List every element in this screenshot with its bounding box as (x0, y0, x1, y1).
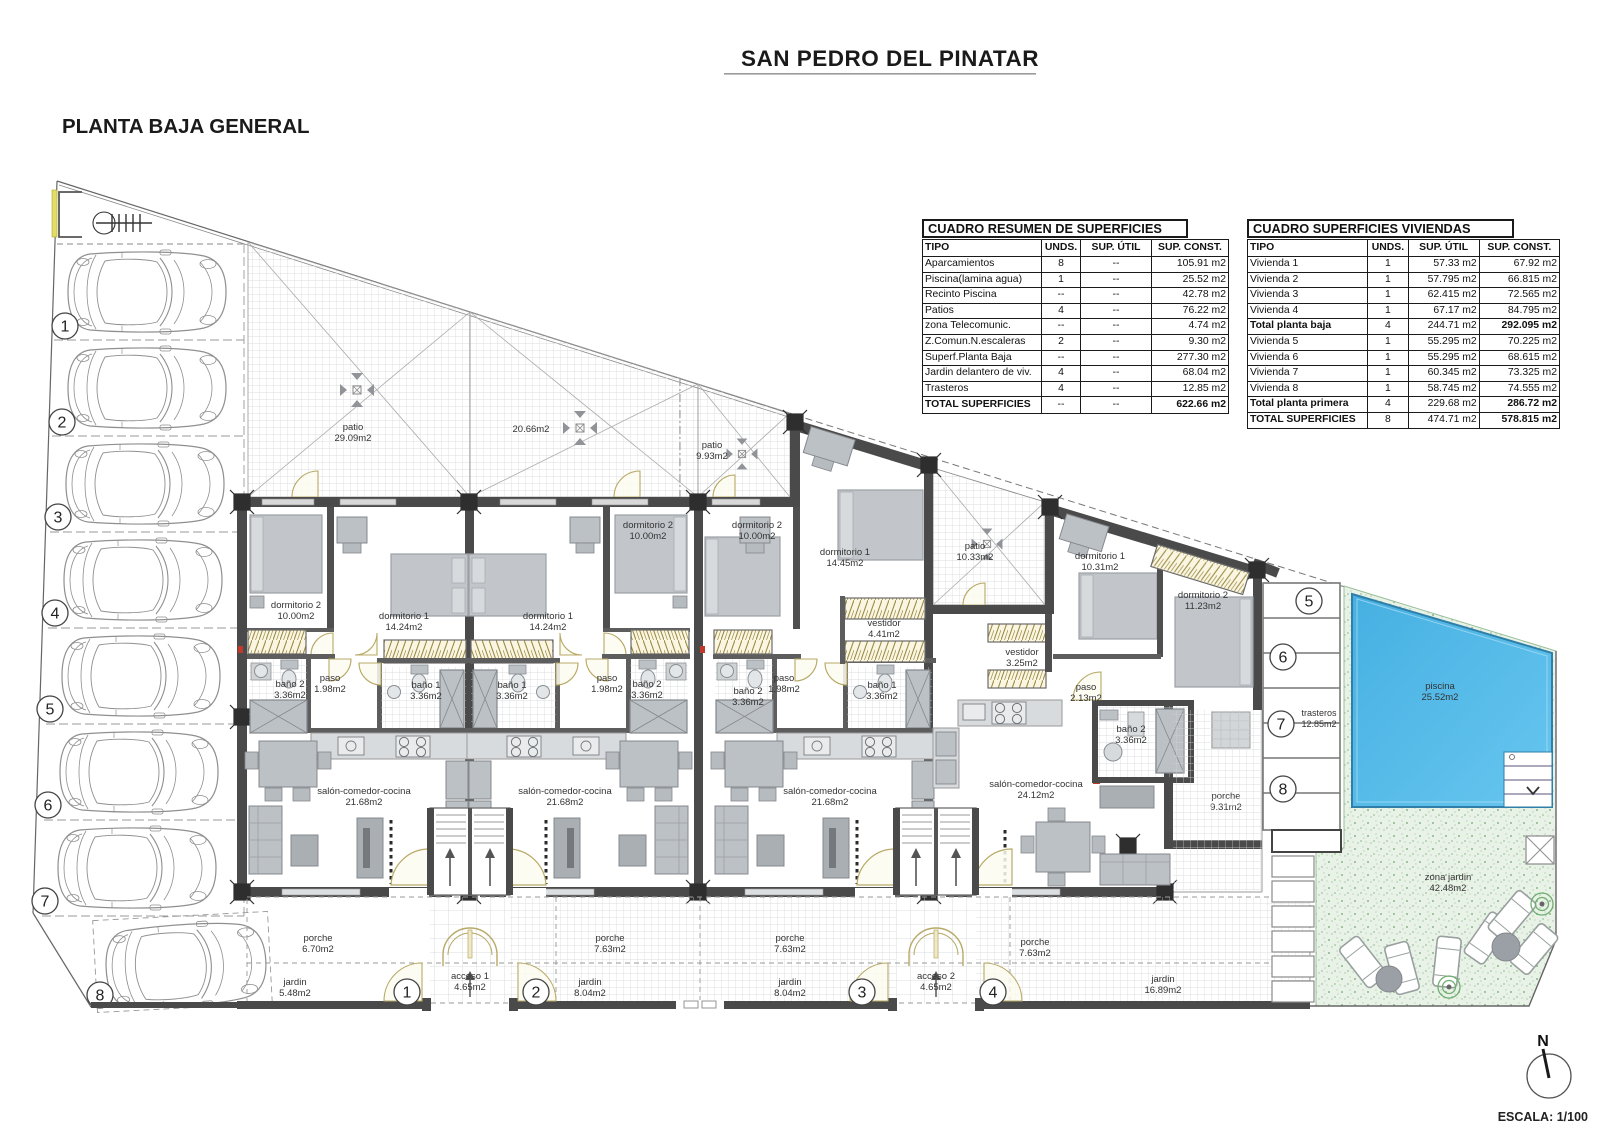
svg-text:vestidor: vestidor (867, 618, 900, 629)
svg-text:10.00m2: 10.00m2 (739, 531, 776, 542)
svg-text:42.48m2: 42.48m2 (1430, 883, 1467, 894)
svg-text:14.45m2: 14.45m2 (827, 558, 864, 569)
svg-text:7: 7 (41, 894, 50, 911)
svg-text:6.70m2: 6.70m2 (302, 944, 334, 955)
svg-text:3.36m2: 3.36m2 (732, 697, 764, 708)
svg-text:8.04m2: 8.04m2 (574, 988, 606, 999)
svg-text:porche: porche (303, 933, 332, 944)
svg-text:dormitorio 1: dormitorio 1 (379, 611, 429, 622)
svg-text:3: 3 (858, 985, 867, 1002)
svg-text:6: 6 (44, 798, 53, 815)
svg-text:2: 2 (532, 985, 541, 1002)
svg-text:10.31m2: 10.31m2 (1082, 562, 1119, 573)
svg-text:PLANTA BAJA GENERAL: PLANTA BAJA GENERAL (62, 115, 310, 138)
svg-text:21.68m2: 21.68m2 (346, 797, 383, 808)
svg-text:5: 5 (46, 702, 55, 719)
svg-text:3.36m2: 3.36m2 (410, 691, 442, 702)
svg-text:trasteros: trasteros (1301, 708, 1337, 718)
svg-text:8.04m2: 8.04m2 (774, 988, 806, 999)
svg-text:16.89m2: 16.89m2 (1145, 985, 1182, 996)
svg-text:piscina: piscina (1425, 681, 1455, 692)
svg-text:7: 7 (1277, 717, 1286, 734)
svg-text:patio: patio (702, 440, 723, 451)
svg-text:10.33m2: 10.33m2 (957, 552, 994, 563)
svg-text:11.23m2: 11.23m2 (1185, 601, 1221, 612)
svg-text:1.98m2: 1.98m2 (314, 684, 346, 695)
svg-text:21.68m2: 21.68m2 (812, 797, 849, 808)
svg-text:N: N (1537, 1033, 1549, 1050)
svg-text:jardin: jardin (577, 977, 601, 988)
svg-text:7.63m2: 7.63m2 (774, 944, 806, 955)
svg-text:20.66m2: 20.66m2 (513, 424, 550, 435)
svg-text:salón-comedor-cocina: salón-comedor-cocina (317, 786, 411, 797)
svg-text:10.00m2: 10.00m2 (630, 531, 667, 542)
svg-text:3.36m2: 3.36m2 (1115, 735, 1147, 746)
svg-text:paso: paso (320, 673, 341, 684)
svg-text:baño 1: baño 1 (867, 680, 896, 691)
svg-text:dormitorio 1: dormitorio 1 (1075, 551, 1125, 562)
svg-text:8: 8 (96, 988, 105, 1005)
svg-text:7.63m2: 7.63m2 (1019, 948, 1051, 959)
svg-text:jardin: jardin (282, 977, 306, 988)
svg-text:patio: patio (965, 541, 986, 552)
svg-text:porche: porche (1020, 937, 1049, 948)
svg-text:baño 2: baño 2 (632, 679, 661, 690)
svg-text:baño 1: baño 1 (411, 680, 440, 691)
svg-text:zona jardin: zona jardin (1425, 872, 1471, 883)
svg-text:24.12m2: 24.12m2 (1018, 790, 1055, 801)
svg-text:dormitorio 1: dormitorio 1 (523, 611, 573, 622)
svg-text:SAN PEDRO DEL PINATAR: SAN PEDRO DEL PINATAR (741, 46, 1039, 71)
svg-text:patio: patio (343, 422, 364, 433)
svg-text:paso: paso (774, 673, 795, 684)
svg-text:2.13m2: 2.13m2 (1070, 693, 1102, 704)
svg-text:dormitorio 1: dormitorio 1 (820, 547, 870, 558)
svg-text:salón-comedor-cocina: salón-comedor-cocina (989, 779, 1083, 790)
svg-text:1.98m2: 1.98m2 (591, 684, 623, 695)
svg-text:8: 8 (1279, 782, 1288, 799)
svg-text:3.36m2: 3.36m2 (631, 690, 663, 701)
svg-text:jardin: jardin (1150, 974, 1174, 985)
svg-text:5: 5 (1305, 594, 1314, 611)
svg-text:3.36m2: 3.36m2 (866, 691, 898, 702)
svg-text:dormitorio 2: dormitorio 2 (732, 520, 782, 531)
svg-text:vestidor: vestidor (1005, 647, 1038, 658)
svg-text:25.52m2: 25.52m2 (1422, 692, 1459, 703)
svg-text:3.25m2: 3.25m2 (1006, 658, 1038, 669)
svg-text:paso: paso (1076, 682, 1097, 693)
svg-text:baño 2: baño 2 (1116, 724, 1145, 735)
svg-text:baño 2: baño 2 (275, 679, 304, 690)
svg-text:4: 4 (989, 985, 998, 1002)
svg-text:porche: porche (595, 933, 624, 944)
svg-text:3.36m2: 3.36m2 (496, 691, 528, 702)
svg-text:1.98m2: 1.98m2 (768, 684, 800, 695)
svg-text:acceso 1: acceso 1 (451, 971, 489, 982)
svg-text:12.85m2: 12.85m2 (1301, 719, 1336, 729)
svg-text:29.09m2: 29.09m2 (335, 433, 372, 444)
svg-text:3.36m2: 3.36m2 (274, 690, 306, 701)
svg-text:1: 1 (61, 319, 70, 336)
svg-text:4.65m2: 4.65m2 (454, 982, 486, 993)
svg-text:3: 3 (54, 510, 63, 527)
svg-text:salón-comedor-cocina: salón-comedor-cocina (518, 786, 612, 797)
svg-text:7.63m2: 7.63m2 (594, 944, 626, 955)
svg-text:1: 1 (403, 985, 412, 1002)
svg-text:14.24m2: 14.24m2 (386, 622, 423, 633)
svg-text:2: 2 (58, 415, 67, 432)
svg-text:acceso 2: acceso 2 (917, 971, 955, 982)
svg-text:porche: porche (775, 933, 804, 944)
svg-text:baño 2: baño 2 (733, 686, 762, 697)
svg-text:10.00m2: 10.00m2 (278, 611, 315, 622)
svg-text:salón-comedor-cocina: salón-comedor-cocina (783, 786, 877, 797)
svg-text:9.93m2: 9.93m2 (696, 451, 728, 462)
svg-text:jardin: jardin (777, 977, 801, 988)
svg-text:4.41m2: 4.41m2 (868, 629, 900, 640)
svg-text:6: 6 (1279, 650, 1288, 667)
svg-text:4: 4 (51, 606, 60, 623)
svg-text:dormitorio 2: dormitorio 2 (623, 520, 673, 531)
svg-text:ESCALA: 1/100: ESCALA: 1/100 (1498, 1110, 1588, 1124)
svg-text:4.65m2: 4.65m2 (920, 982, 952, 993)
svg-text:14.24m2: 14.24m2 (530, 622, 567, 633)
svg-text:baño 1: baño 1 (497, 680, 526, 691)
svg-text:5.48m2: 5.48m2 (279, 988, 311, 999)
svg-text:paso: paso (597, 673, 618, 684)
svg-text:dormitorio 2: dormitorio 2 (271, 600, 321, 611)
svg-text:21.68m2: 21.68m2 (547, 797, 584, 808)
svg-text:dormitorio 2: dormitorio 2 (1178, 590, 1228, 601)
